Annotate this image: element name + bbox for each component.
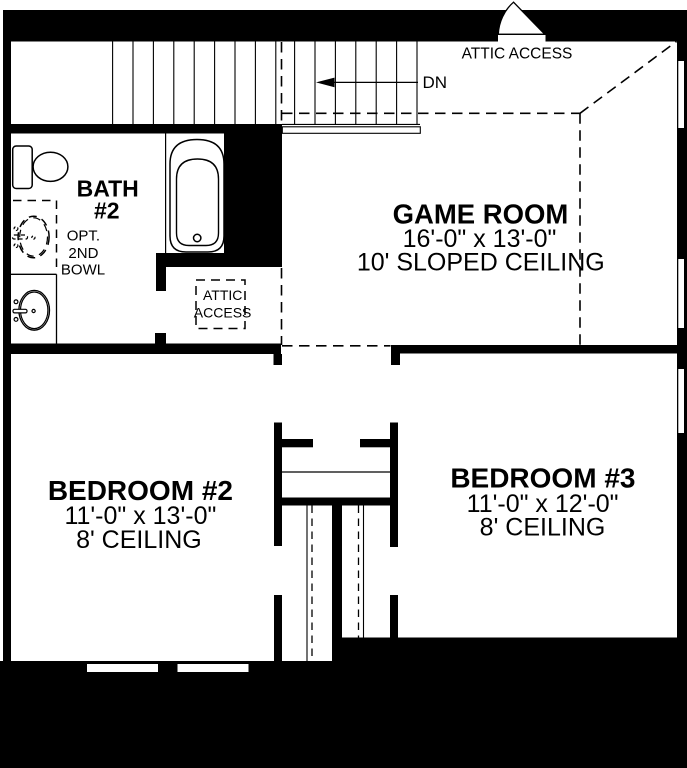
svg-text:2ND: 2ND bbox=[68, 245, 98, 262]
svg-text:#2: #2 bbox=[94, 198, 120, 224]
svg-text:ACCESS: ACCESS bbox=[194, 305, 252, 321]
svg-text:ATTIC ACCESS: ATTIC ACCESS bbox=[462, 46, 573, 63]
svg-text:8' CEILING: 8' CEILING bbox=[480, 514, 606, 542]
svg-text:BOWL: BOWL bbox=[61, 262, 105, 279]
svg-text:10' SLOPED CEILING: 10' SLOPED CEILING bbox=[357, 249, 605, 277]
svg-text:OPT.: OPT. bbox=[67, 228, 100, 245]
svg-text:BEDROOM #3: BEDROOM #3 bbox=[450, 463, 635, 494]
svg-text:DN: DN bbox=[423, 73, 448, 92]
svg-text:8' CEILING: 8' CEILING bbox=[76, 526, 202, 554]
svg-text:ATTIC: ATTIC bbox=[203, 287, 242, 303]
